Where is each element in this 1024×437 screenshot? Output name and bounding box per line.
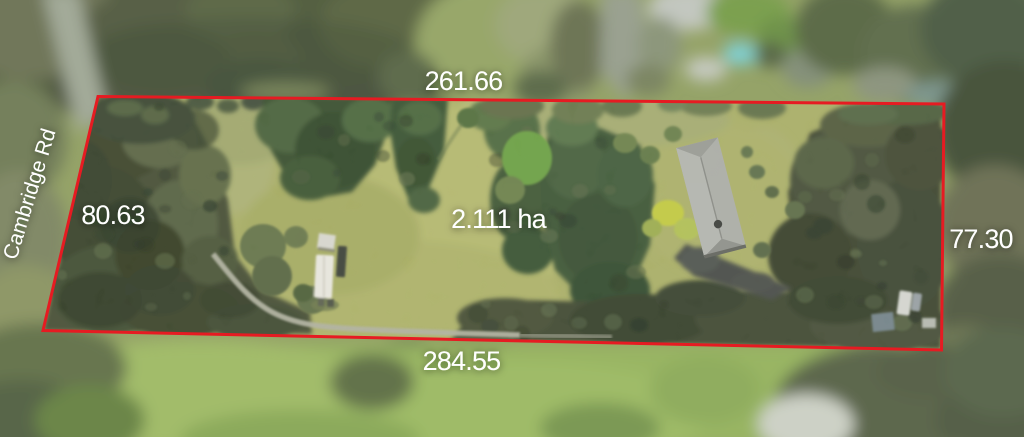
svg-text:284.55: 284.55 — [423, 346, 501, 376]
svg-text:261.66: 261.66 — [425, 66, 503, 96]
svg-text:77.30: 77.30 — [949, 224, 1013, 254]
svg-text:2.111 ha: 2.111 ha — [451, 204, 547, 234]
svg-text:80.63: 80.63 — [81, 200, 145, 230]
